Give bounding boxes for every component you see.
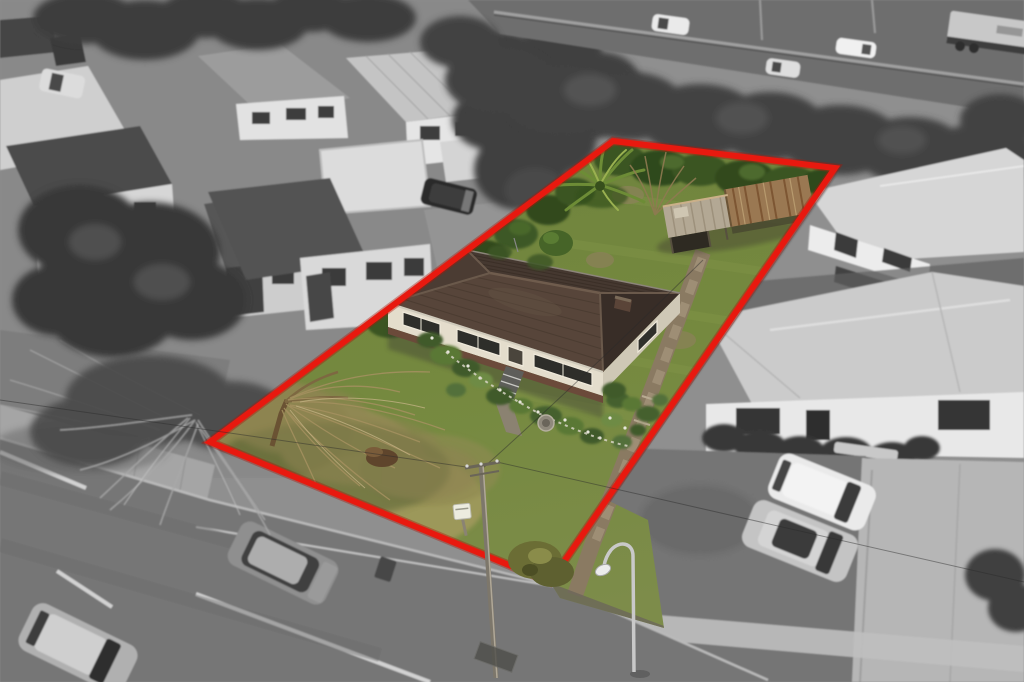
aerial-photo <box>0 0 1024 682</box>
aerial-photo-canvas <box>0 0 1024 682</box>
